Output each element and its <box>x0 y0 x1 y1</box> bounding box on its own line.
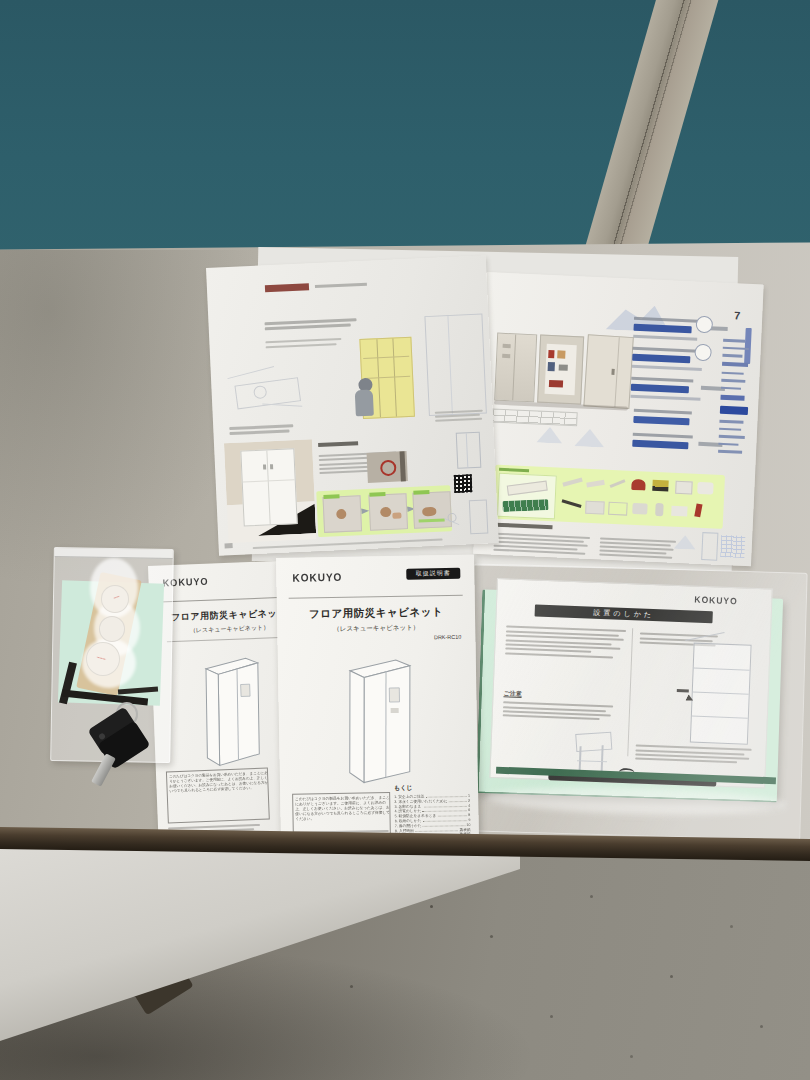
kokuyo-logo: KOKUYO <box>292 571 342 584</box>
caution-label: ご注意 <box>503 689 521 699</box>
steps-highlight-box <box>316 485 452 537</box>
spec-table <box>491 408 578 426</box>
photo-scene: 7 <box>0 0 810 1080</box>
wall-badge-icon <box>694 344 712 362</box>
step-photo <box>368 493 408 531</box>
arrow-icon <box>685 694 694 703</box>
cushion-disc: ~~ <box>101 585 129 613</box>
highlighted-cabinet-illustration <box>359 337 415 419</box>
text-lines <box>505 623 626 661</box>
model-number: DRK-RC10 <box>277 634 461 643</box>
stretcher-subbox <box>497 473 557 520</box>
price-bar <box>632 440 688 450</box>
cabinet-line-drawing <box>193 649 271 770</box>
person-cabinet-sketch <box>439 497 491 539</box>
index-highlight <box>720 406 748 415</box>
install-title-bar: 設置のしかた <box>535 604 713 623</box>
notice-text: このたびはコクヨの製品をお買い求めいただき、まことにありがとうございます。ご使用… <box>293 793 391 824</box>
text-lines <box>635 742 752 766</box>
red-tool-photo <box>694 503 702 517</box>
cushion-disc: ~~~ <box>86 642 120 676</box>
cabinet-keys <box>84 698 154 798</box>
kit-photo <box>652 480 668 492</box>
price-bar <box>633 416 689 426</box>
price-bar <box>633 324 691 334</box>
corner-sketch <box>674 535 697 550</box>
bracket-sketch-1 <box>536 426 563 443</box>
install-title: 設置のしかた <box>593 608 654 620</box>
corner-grid-sketch <box>720 535 745 558</box>
cabinet-line-drawing <box>336 649 424 786</box>
catalog-page-number: 7 <box>734 309 741 321</box>
price-bar <box>632 354 690 364</box>
qr-code <box>454 474 473 493</box>
catalog-page-left <box>206 255 499 555</box>
wall-badge-icon <box>695 316 713 334</box>
text-lines <box>599 535 676 560</box>
cabinet-room-illustration <box>224 439 316 543</box>
text-lines <box>264 315 357 333</box>
cushion-disc <box>99 616 125 642</box>
kokuyo-logo: KOKUYO <box>694 595 738 607</box>
text-lines <box>435 408 484 424</box>
cabinet-photo-closed <box>494 333 537 403</box>
manual-title: フロア用防災キャビネット <box>277 605 475 622</box>
notice-text: このたびはコクヨの製品をお買い求めいただき、まことにありがとうございます。ご使用… <box>167 768 270 795</box>
cabinet-photo-open <box>537 335 584 405</box>
arrow-label <box>677 689 689 692</box>
page-number-mark <box>225 543 233 548</box>
text-lines <box>503 699 614 723</box>
text-lines <box>493 531 590 557</box>
key-shaft <box>91 753 116 786</box>
text-lines <box>229 422 293 437</box>
cabinet-install-sketch <box>690 643 752 745</box>
toc-heading: もくじ <box>394 783 470 793</box>
manual-booklet-right: KOKUYO 取扱説明書 フロア用防災キャビネット （レスキューキャビネット） … <box>276 555 479 846</box>
door-outline-sketch <box>424 314 486 417</box>
notice-box: このたびはコクヨの製品をお買い求めいただき、まことにありがとうございます。ご使用… <box>166 768 270 824</box>
stretcher-white <box>507 481 548 496</box>
text-lines <box>265 336 341 351</box>
step-photo <box>323 495 363 533</box>
catalog-page-right: 7 <box>473 272 764 566</box>
dial-lock-photo <box>367 451 408 483</box>
bracket-sketch-2 <box>574 428 605 447</box>
helmet-photo <box>631 479 645 491</box>
stretcher-green <box>502 499 548 512</box>
cabinet-photo-door <box>583 334 633 409</box>
supplies-highlight-box <box>493 465 725 529</box>
instruction-manual-badge: 取扱説明書 <box>406 568 460 580</box>
section-header-red <box>265 283 309 292</box>
small-cabinet-sketch <box>456 432 482 469</box>
white-cabinet <box>240 448 297 526</box>
floor-speckles <box>430 905 433 908</box>
badge-label: 取扱説明書 <box>416 569 451 579</box>
chevron-right-icon <box>361 508 369 514</box>
install-instruction-sheet: KOKUYO 設置のしかた ご注意 <box>489 578 772 788</box>
corner-cabinet-sketch <box>701 532 718 561</box>
price-bar <box>631 384 689 394</box>
office-sketch <box>226 355 329 419</box>
